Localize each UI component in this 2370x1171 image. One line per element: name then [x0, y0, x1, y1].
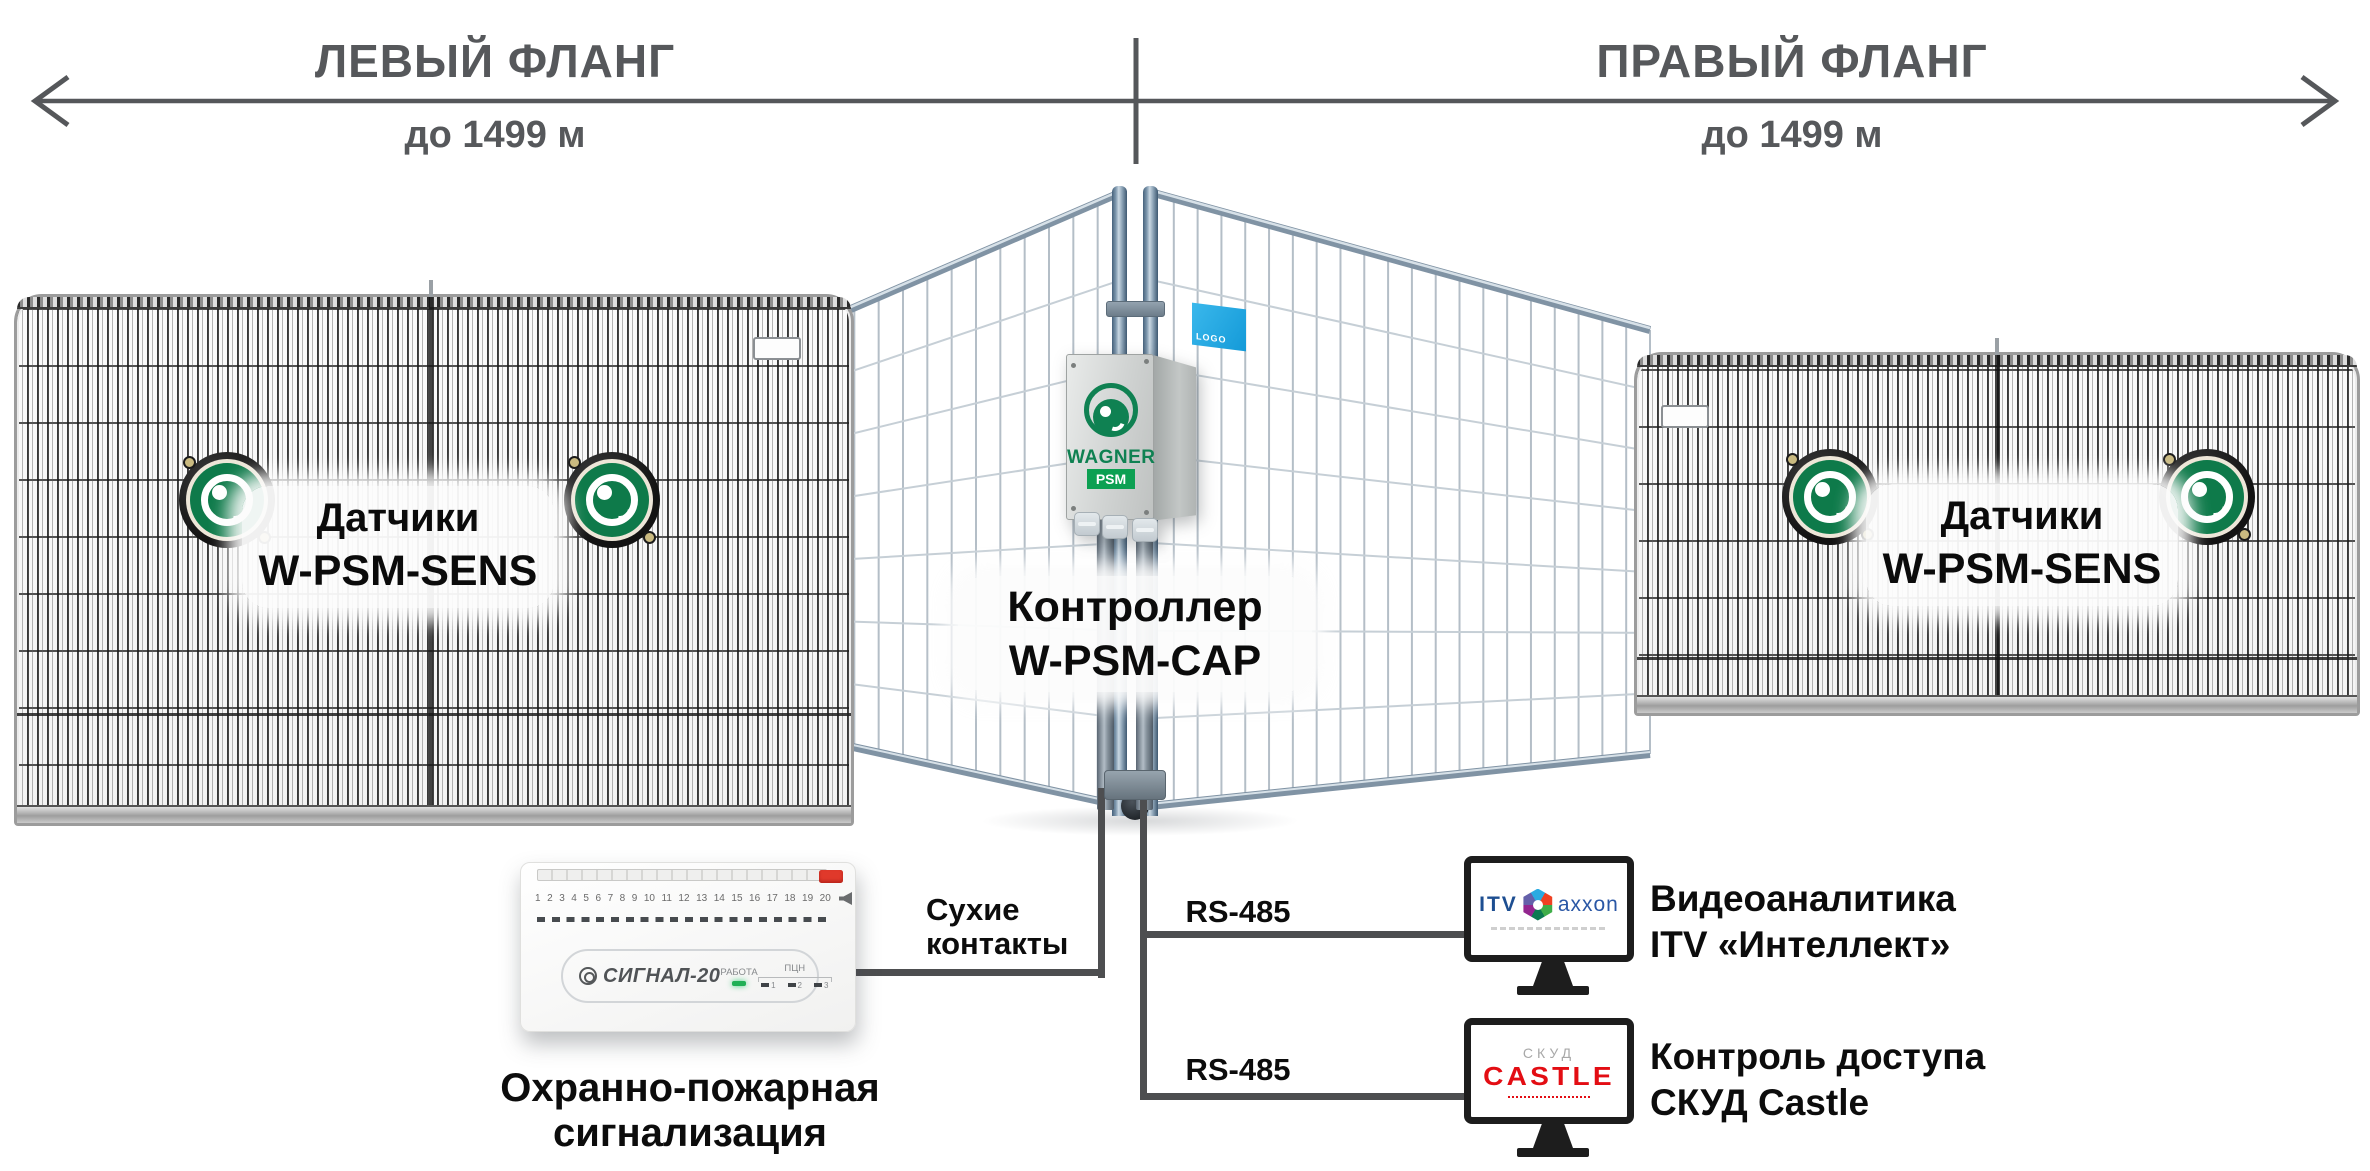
terminal-num: 20	[820, 893, 831, 904]
fence-top-rail	[17, 297, 851, 309]
terminal-num: 3	[559, 893, 565, 904]
skud-logo-text: СКУД	[1523, 1045, 1575, 1061]
wire-dry-contacts-horizontal	[853, 969, 1105, 976]
label-line: Датчики	[1866, 490, 2178, 542]
terminal-num: 7	[608, 893, 614, 904]
left-flank-title: ЛЕВЫЙ ФЛАНГ	[215, 34, 775, 88]
logo-subtext	[1491, 927, 1607, 930]
caption-line: Охранно-пожарная	[460, 1066, 920, 1111]
terminal-num: 2	[547, 893, 553, 904]
work-indicator: РАБОТА	[720, 967, 757, 986]
label-line: Сухие	[926, 893, 1068, 927]
caption-line: СКУД Castle	[1650, 1080, 1985, 1126]
caption-line: Контроль доступа	[1650, 1034, 1985, 1080]
terminal-num: 9	[632, 893, 638, 904]
pole-clamp	[1104, 770, 1166, 800]
fire-alarm-caption: Охранно-пожарная сигнализация	[460, 1066, 920, 1156]
axxon-pinwheel-icon	[1522, 889, 1554, 921]
fence-ground-bar	[17, 805, 851, 823]
wire-rs485-bottom	[1145, 1093, 1467, 1100]
signal20-logo: СИГНАЛ-20	[579, 965, 720, 988]
label-line: W-PSM-CAP	[958, 634, 1312, 688]
work-led	[732, 981, 746, 986]
fence-wire	[17, 713, 851, 716]
terminal-num: 8	[620, 893, 626, 904]
terminal-num: 19	[802, 893, 813, 904]
screw-icon	[1144, 359, 1149, 364]
sticker-label: LOGO	[1196, 331, 1227, 345]
castle-logo-text: CASTLE	[1483, 1061, 1615, 1092]
left-flank-distance: до 1499 м	[215, 114, 775, 157]
castle-monitor: СКУД CASTLE	[1464, 1018, 1634, 1124]
pcn-led-num: 3	[824, 981, 828, 990]
controller-label: Контроллер W-PSM-CAP	[958, 576, 1312, 692]
wagner-eye-pupil	[1093, 399, 1129, 435]
red-button	[819, 870, 843, 883]
psm-badge: PSM	[1087, 469, 1135, 489]
terminal-num: 6	[595, 893, 601, 904]
diagram-canvas: ЛЕВЫЙ ФЛАНГ до 1499 м ПРАВЫЙ ФЛАНГ до 14…	[0, 0, 2370, 1171]
seam-post	[1995, 338, 1999, 355]
wagner-brand: WAGNER	[1067, 447, 1155, 469]
terminal-num: 16	[749, 893, 760, 904]
cable-gland	[1074, 512, 1100, 536]
terminal-num: 17	[767, 893, 778, 904]
cable-gland	[1102, 515, 1128, 539]
dry-contacts-label: Сухие контакты	[926, 893, 1068, 961]
wire-rs485-vertical	[1140, 788, 1147, 1100]
pcn-led: 1	[761, 981, 775, 990]
caption-line: Видеоаналитика	[1650, 876, 1956, 922]
wire-rs485-top	[1145, 931, 1467, 938]
terminal-num: 14	[714, 893, 725, 904]
signal20-logo-text: СИГНАЛ-20	[603, 965, 720, 988]
pole-bracket	[1106, 301, 1165, 317]
signal20-logo-icon	[579, 967, 597, 985]
video-analytics-caption: Видеоаналитика ITV «Интеллект»	[1650, 876, 1956, 968]
label-line: W-PSM-SENS	[242, 544, 554, 598]
sensor-w-psm-sens-3	[1782, 449, 1878, 545]
terminal-num: 13	[696, 893, 707, 904]
sensor-w-psm-sens-2	[564, 452, 660, 548]
front-panel-oval: СИГНАЛ-20 РАБОТА ПЦН 1 2 3	[561, 949, 819, 1003]
fence-id-plate	[753, 337, 801, 360]
monitor-base	[1517, 986, 1589, 995]
wire-dry-contacts-vertical	[1098, 788, 1105, 978]
seam-post	[429, 280, 433, 297]
label-line: контакты	[926, 927, 1068, 961]
access-control-caption: Контроль доступа СКУД Castle	[1650, 1034, 1985, 1126]
terminal-num: 10	[644, 893, 655, 904]
speaker-icon	[839, 892, 852, 905]
screw-icon	[1071, 506, 1076, 511]
rs485-label-top: RS-485	[1158, 894, 1318, 930]
fence-id-plate	[1661, 405, 1709, 428]
pcn-led-num: 2	[798, 981, 802, 990]
pcn-indicators: ПЦН 1 2 3	[758, 963, 832, 990]
right-flank-title: ПРАВЫЙ ФЛАНГ	[1512, 34, 2072, 88]
terminal-num: 12	[678, 893, 689, 904]
label-line: W-PSM-SENS	[1866, 542, 2178, 596]
itv-monitor: ITV axxon	[1464, 856, 1634, 962]
terminal-num: 15	[731, 893, 742, 904]
left-sensors-label: Датчики W-PSM-SENS	[242, 486, 554, 608]
rs485-label-bottom: RS-485	[1158, 1052, 1318, 1088]
terminal-strip	[537, 869, 827, 881]
caption-line: ITV «Интеллект»	[1650, 922, 1956, 968]
fence-logo-sticker: LOGO	[1192, 303, 1246, 352]
pcn-led: 3	[814, 981, 828, 990]
right-flank-distance: до 1499 м	[1512, 114, 2072, 157]
axxon-logo-text: axxon	[1558, 893, 1619, 917]
zone-led-row	[537, 917, 829, 922]
controller-box-side	[1154, 350, 1196, 524]
signal20-device: 1234567891011121314151617181920 СИГНАЛ-2…	[520, 862, 856, 1032]
itv-axxon-logo: ITV axxon	[1479, 889, 1619, 921]
terminal-num: 4	[571, 893, 577, 904]
fence-ground-bar	[1637, 695, 2357, 713]
controller-box-front: WAGNER PSM	[1066, 354, 1154, 520]
controller-box: WAGNER PSM	[1066, 350, 1198, 524]
terminal-num: 18	[784, 893, 795, 904]
terminal-num: 11	[662, 893, 672, 904]
pcn-led-row: 1 2 3	[761, 981, 828, 990]
itv-logo-text: ITV	[1479, 893, 1518, 917]
pcn-led-num: 1	[771, 981, 775, 990]
terminal-num: 1	[535, 893, 541, 904]
terminal-numbers: 1234567891011121314151617181920	[535, 893, 831, 904]
label-line: Контроллер	[958, 580, 1312, 634]
castle-logo-subtext	[1508, 1096, 1590, 1098]
label-line: Датчики	[242, 492, 554, 544]
pcn-led: 2	[788, 981, 802, 990]
monitor-base	[1517, 1148, 1589, 1157]
work-label: РАБОТА	[720, 967, 757, 978]
right-sensors-label: Датчики W-PSM-SENS	[1866, 484, 2178, 606]
screw-icon	[1071, 363, 1076, 368]
terminal-num: 5	[583, 893, 589, 904]
screw-icon	[1144, 510, 1149, 515]
pcn-label: ПЦН	[784, 963, 805, 974]
cable-gland	[1132, 518, 1158, 542]
caption-line: сигнализация	[460, 1111, 920, 1156]
